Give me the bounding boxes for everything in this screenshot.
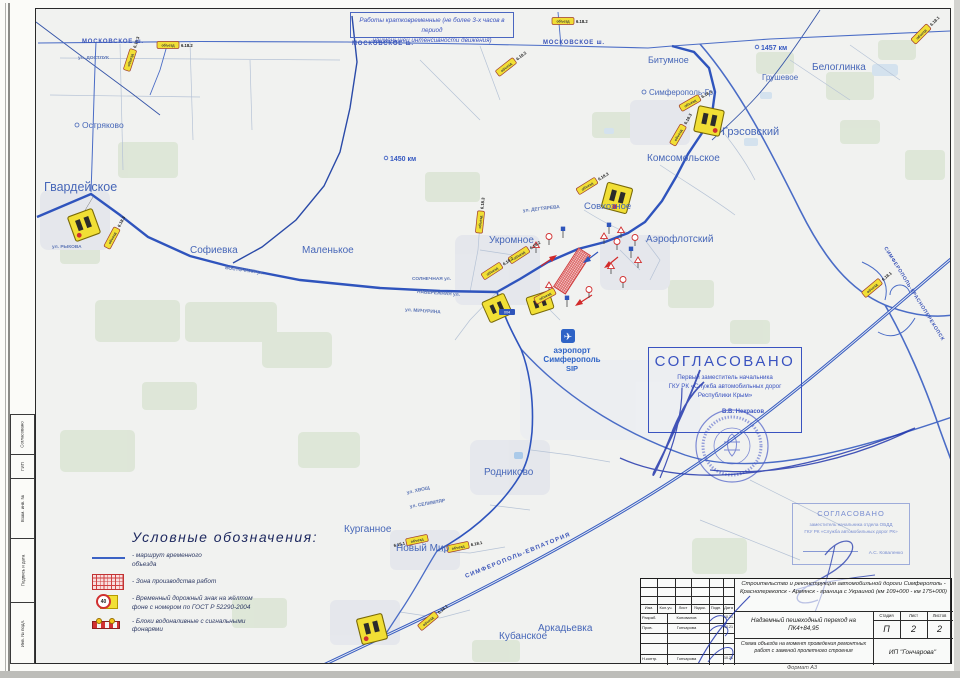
strip-cell-gip: ГИП	[11, 455, 34, 479]
strip-label: Инв. № подл.	[20, 619, 25, 646]
scan-edge-right	[954, 0, 960, 678]
strip-label: ГИП	[20, 462, 25, 471]
strip-cell-podpis: Подпись и дата	[11, 539, 34, 603]
strip-cell-inv: Инв. № подл.	[11, 603, 34, 663]
strip-cell-soglasovano: Согласовано	[11, 415, 34, 455]
frame-side-column: Согласовано ГИП Взам. инв. № Подпись и д…	[10, 414, 35, 664]
sheet-edge-line	[8, 3, 10, 671]
strip-cell-vzam: Взам. инв. №	[11, 479, 34, 539]
scan-edge-bottom	[0, 671, 960, 678]
drawing-sheet: объезд6.18.2 объезд6.18.2 объезд6.18.3 о…	[0, 0, 960, 678]
strip-label: Взам. инв. №	[20, 495, 25, 522]
strip-label: Согласовано	[20, 421, 25, 447]
strip-label: Подпись и дата	[20, 555, 25, 587]
sheet-edge-line	[5, 3, 6, 671]
drawing-frame	[35, 8, 951, 664]
